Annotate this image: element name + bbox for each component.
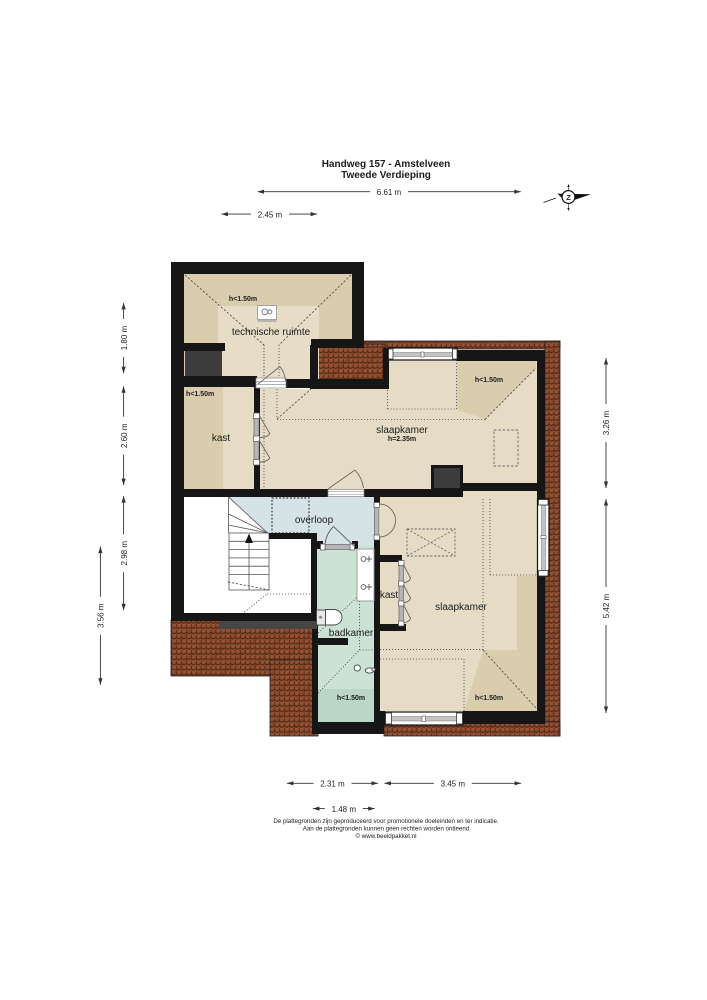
svg-text:1.80 m: 1.80 m [120,325,129,350]
svg-text:kast: kast [212,433,231,444]
svg-text:h<1.50m: h<1.50m [475,377,503,384]
svg-text:Aan de plattegronden kunnen ge: Aan de plattegronden kunnen geen rechten… [303,826,470,833]
svg-text:Tweede Verdieping: Tweede Verdieping [341,170,431,181]
svg-text:h<1.50m: h<1.50m [229,296,257,303]
svg-text:Handweg 157 - Amstelveen: Handweg 157 - Amstelveen [322,159,451,170]
svg-text:slaapkamer: slaapkamer [435,602,487,613]
svg-text:h=2.35m: h=2.35m [388,436,416,443]
svg-text:kast: kast [380,590,399,601]
svg-text:© www.beeldpakket.nl: © www.beeldpakket.nl [356,833,417,840]
svg-text:3.26 m: 3.26 m [602,410,611,435]
svg-text:Z: Z [566,193,571,202]
svg-text:2.45 m: 2.45 m [258,210,283,219]
svg-text:technische ruimte: technische ruimte [232,327,311,338]
svg-text:badkamer: badkamer [329,628,374,639]
svg-text:5.42 m: 5.42 m [602,593,611,618]
svg-text:h<1.50m: h<1.50m [186,391,214,398]
svg-text:overloop: overloop [295,515,334,526]
svg-text:6.61 m: 6.61 m [377,188,402,197]
svg-text:1.48 m: 1.48 m [332,805,357,814]
svg-text:3.56 m: 3.56 m [97,603,106,628]
svg-text:3.45 m: 3.45 m [441,780,466,789]
svg-text:2.60 m: 2.60 m [120,423,129,448]
svg-text:h<1.50m: h<1.50m [337,695,365,702]
svg-text:slaapkamer: slaapkamer [376,425,428,436]
svg-text:h<1.50m: h<1.50m [475,695,503,702]
svg-text:De plattegronden zijn geproduc: De plattegronden zijn geproduceerd voor … [273,818,499,825]
svg-text:2.31 m: 2.31 m [320,780,345,789]
svg-text:2.98 m: 2.98 m [120,541,129,566]
